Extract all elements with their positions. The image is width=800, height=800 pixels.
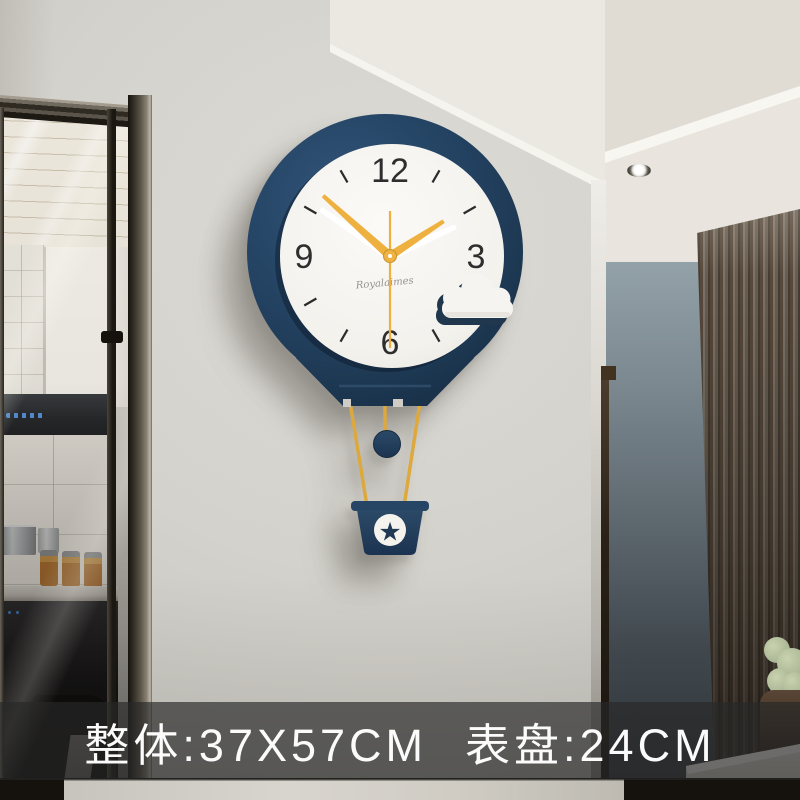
door-handle [101,331,123,343]
product-size-banner: 整体:37X57CM 表盘:24CM [0,702,800,780]
recessed-spotlight [627,164,651,177]
numeral-9: 9 [295,238,314,276]
basket-rim [351,501,429,511]
balloon-wall-clock: ★ 12 3 6 9 Royalaimes [225,90,545,560]
glass-partition-door [0,95,152,800]
numeral-3: 3 [467,238,486,276]
numeral-12: 12 [371,152,409,190]
door-frame-corner [601,366,616,380]
star-icon: ★ [378,517,401,547]
door-left-frame [0,108,4,800]
pendulum-disc [374,431,401,458]
overall-size-label: 整体:37X57CM [84,709,427,774]
room-product-photo: ★ 12 3 6 9 Royalaimes [0,0,800,800]
door-right-stile [128,95,152,800]
center-pin [388,254,392,258]
marble-floor [64,779,624,800]
dial-size-label: 表盘:24CM [465,709,716,774]
door-mullion [107,109,116,800]
